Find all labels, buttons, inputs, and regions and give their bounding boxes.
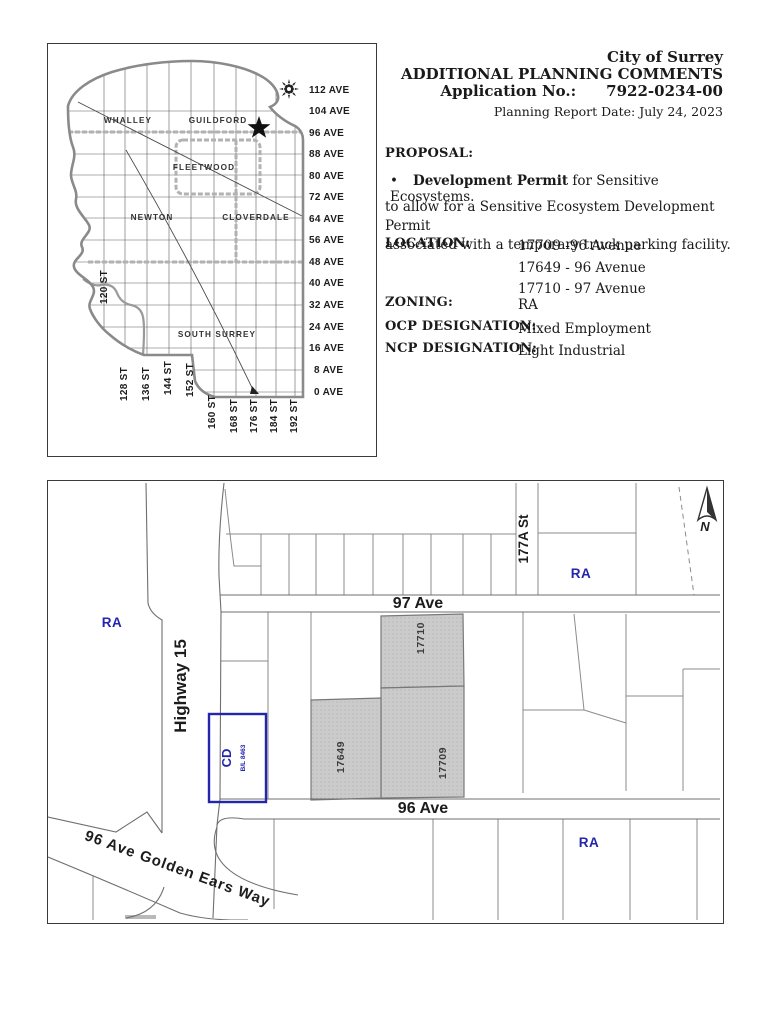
location-row: LOCATION: 17709 -96 Avenue 17649 - 96 Av… [385, 236, 730, 302]
surrey-boundary [68, 61, 303, 397]
location-values: 17709 -96 Avenue 17649 - 96 Avenue 17710… [518, 236, 646, 301]
compass-rose-icon [279, 79, 299, 99]
report-title: ADDITIONAL PLANNING COMMENTS [340, 66, 723, 83]
street-label-97-ave: 97 Ave [393, 595, 444, 612]
lot-label-17710: 17710 [415, 622, 427, 654]
ncp-value: Light Industrial [518, 341, 625, 363]
ocp-value: Mixed Employment [518, 319, 651, 341]
surrey-overview-map: WHALLEY GUILDFORD FLEETWOOD NEWTON CLOVE… [47, 43, 377, 457]
avenue-label: 88 AVE [309, 149, 344, 160]
application-number-value: 7922-0234-00 [606, 83, 723, 100]
zoning-row: ZONING: RA [385, 295, 730, 315]
lot-label-17649: 17649 [335, 741, 347, 773]
street-label: 120 ST [99, 270, 110, 304]
street-label: 184 ST [269, 399, 280, 433]
proposal-paragraph-line1: to allow for a Sensitive Ecosystem Devel… [385, 198, 735, 236]
cd-zone-label: CD [219, 749, 234, 768]
application-number-label: Application No.: [440, 83, 576, 100]
location-value-2: 17649 - 96 Avenue [518, 258, 646, 280]
region-label-newton: NEWTON [131, 213, 174, 222]
avenue-label: 40 AVE [309, 278, 344, 289]
ncp-designation-row: NCP DESIGNATION: Light Industrial [385, 341, 730, 361]
street-label-highway-15: Highway 15 [171, 639, 190, 733]
region-label-cloverdale: CLOVERDALE [222, 213, 289, 222]
zone-label-ra-southeast: RA [579, 835, 600, 850]
proposal-section: PROPOSAL: •Development Permit for Sensit… [385, 146, 735, 161]
region-label-south-surrey: SOUTH SURREY [178, 330, 256, 339]
zone-label-ra-west: RA [102, 615, 123, 630]
planning-report-page: WHALLEY GUILDFORD FLEETWOOD NEWTON CLOVE… [0, 0, 770, 1024]
proposal-bullet-bold: Development Permit [413, 173, 568, 189]
proposal-label: PROPOSAL: [385, 146, 735, 161]
north-label: N [700, 519, 710, 534]
lot-17709-parcel [381, 686, 464, 798]
avenue-labels: 112 AVE 104 AVE 96 AVE 88 AVE 80 AVE 72 … [309, 85, 350, 398]
diagonal-routes [78, 102, 302, 394]
location-value-1: 17709 -96 Avenue [518, 236, 646, 258]
street-label: 136 ST [141, 367, 152, 401]
avenue-label: 24 AVE [309, 322, 344, 333]
street-label-96-ave: 96 Ave [398, 800, 449, 817]
street-label: 128 ST [119, 367, 130, 401]
cd-bylaw-label: B/L 8463 [240, 744, 247, 771]
location-label: LOCATION: [385, 236, 470, 251]
avenue-label: 48 AVE [309, 257, 344, 268]
surrey-overview-map-svg: WHALLEY GUILDFORD FLEETWOOD NEWTON CLOVE… [48, 44, 373, 453]
avenue-label: 32 AVE [309, 300, 344, 311]
avenue-label: 16 AVE [309, 343, 344, 354]
report-date: Planning Report Date: July 24, 2023 [340, 104, 723, 119]
org-name: City of Surrey [340, 49, 723, 66]
street-grid [68, 61, 303, 397]
zone-label-ra-northeast: RA [571, 566, 592, 581]
ncp-label: NCP DESIGNATION: [385, 341, 537, 356]
avenue-label: 8 AVE [314, 365, 343, 376]
street-label-golden-ears-way: 96 Ave Golden Ears Way [82, 827, 272, 910]
ocp-designation-row: OCP DESIGNATION: Mixed Employment [385, 319, 730, 339]
zoning-label: ZONING: [385, 295, 453, 310]
serpentine-river [83, 279, 144, 355]
street-label: 152 ST [185, 363, 196, 397]
avenue-label: 72 AVE [309, 192, 344, 203]
avenue-label: 56 AVE [309, 235, 344, 246]
site-star-icon [248, 116, 271, 138]
street-label: 144 ST [163, 361, 174, 395]
avenue-label: 80 AVE [309, 171, 344, 182]
site-zoning-map: CD B/L 8463 17710 17649 17709 97 Ave 96 … [47, 480, 724, 924]
region-label-whalley: WHALLEY [104, 116, 152, 125]
street-label: 160 ST [207, 395, 218, 429]
site-zoning-map-svg: CD B/L 8463 17710 17649 17709 97 Ave 96 … [48, 481, 720, 920]
north-arrow-icon [698, 488, 716, 520]
street-label: 176 ST [249, 399, 260, 433]
zoning-value: RA [518, 295, 538, 317]
ocp-label: OCP DESIGNATION: [385, 319, 536, 334]
bullet-icon: • [390, 173, 413, 189]
application-number-row: Application No.: 7922-0234-00 [340, 83, 723, 100]
report-header: City of Surrey ADDITIONAL PLANNING COMME… [340, 49, 723, 119]
region-label-fleetwood: FLEETWOOD [173, 163, 235, 172]
street-label-177a-st: 177A St [516, 514, 531, 564]
lot-label-17709: 17709 [437, 747, 449, 779]
street-label: 192 ST [289, 399, 300, 433]
street-label: 168 ST [229, 399, 240, 433]
cd-zone-outline [209, 714, 266, 802]
avenue-label: 0 AVE [314, 387, 343, 398]
avenue-label: 64 AVE [309, 214, 344, 225]
street-labels: 120 ST 128 ST 136 ST 144 ST 152 ST 160 S… [99, 270, 300, 433]
region-label-guildford: GUILDFORD [189, 116, 248, 125]
avenue-label: 96 AVE [309, 128, 344, 139]
